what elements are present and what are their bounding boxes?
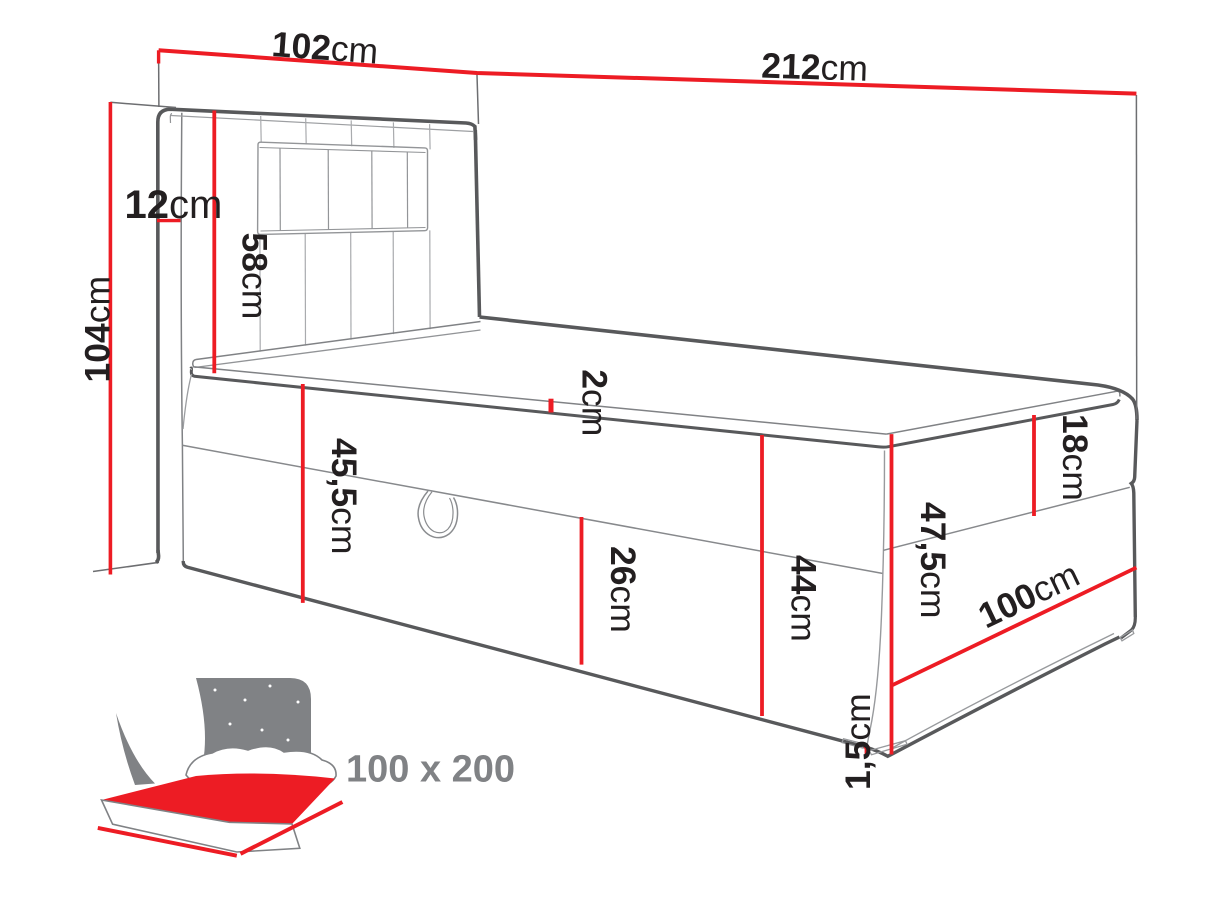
svg-text:12cm: 12cm <box>125 183 223 227</box>
svg-text:44cm: 44cm <box>784 555 824 642</box>
svg-text:2cm: 2cm <box>574 369 614 436</box>
svg-text:26cm: 26cm <box>603 546 643 633</box>
svg-text:58cm: 58cm <box>235 233 275 320</box>
svg-text:104cm: 104cm <box>78 276 118 383</box>
svg-text:100 x 200: 100 x 200 <box>346 749 515 791</box>
svg-text:47,5cm: 47,5cm <box>913 502 953 618</box>
svg-text:1,5cm: 1,5cm <box>838 693 878 790</box>
svg-text:212cm: 212cm <box>761 46 869 89</box>
svg-text:102cm: 102cm <box>270 24 379 72</box>
svg-text:18cm: 18cm <box>1055 414 1095 501</box>
svg-text:45,5cm: 45,5cm <box>324 438 364 554</box>
